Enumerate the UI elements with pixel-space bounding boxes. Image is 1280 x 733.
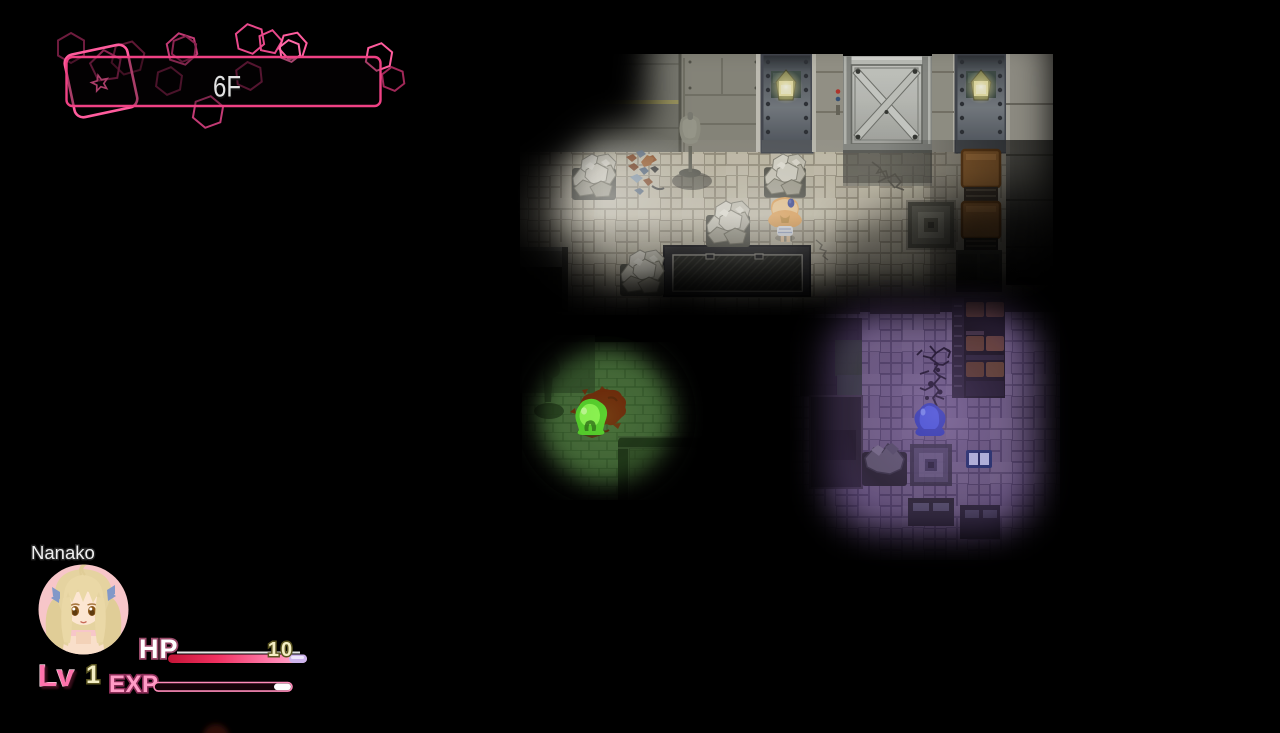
- svg-text:6F: 6F: [213, 71, 241, 104]
- svg-text:EXP: EXP: [109, 671, 159, 698]
- svg-text:10: 10: [268, 639, 294, 661]
- svg-text:1: 1: [86, 661, 100, 689]
- svg-text:Nanako: Nanako: [31, 542, 95, 563]
- svg-text:Lv: Lv: [38, 658, 75, 693]
